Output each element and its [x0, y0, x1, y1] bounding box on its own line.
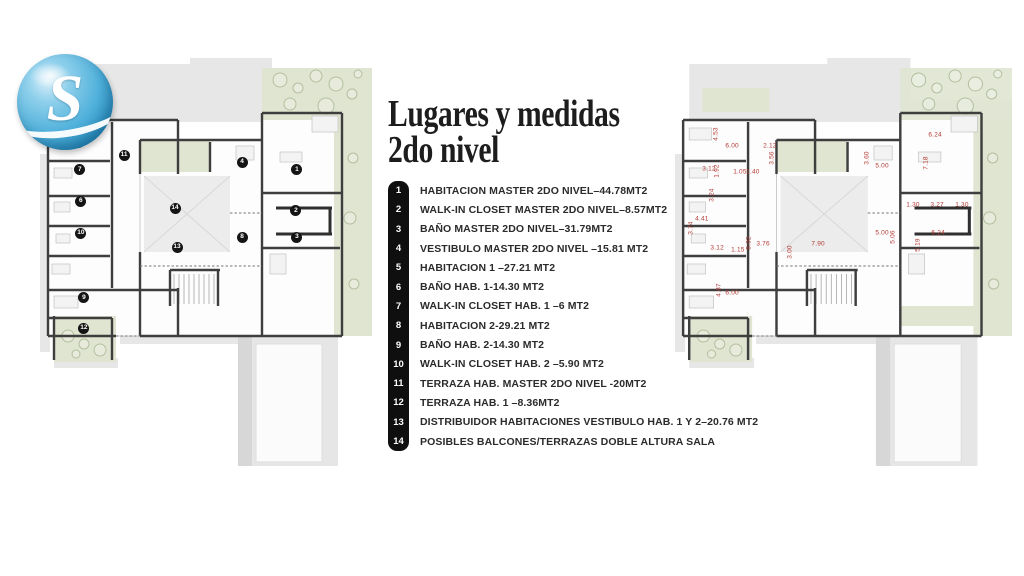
legend-item-number: 13: [388, 413, 409, 432]
legend-item-label: TERRAZA HAB. MASTER 2DO NIVEL -20MT2: [409, 374, 646, 393]
dimension-label: 2.12: [763, 143, 776, 150]
legend-item-number: 8: [388, 316, 409, 335]
logo-letter: S: [47, 66, 84, 132]
dimension-label: 1.30: [906, 202, 919, 209]
dimension-label: 3.12: [710, 244, 723, 251]
legend-item-number: 7: [388, 297, 409, 316]
logo-sphere: S: [17, 54, 113, 150]
room-marker-6: 6: [75, 196, 86, 207]
legend-item-label: HABITACION 2-29.21 MT2: [409, 316, 550, 335]
dimension-label: 5.00: [875, 162, 888, 169]
legend-item-number: 12: [388, 393, 409, 412]
dimension-label: 1.05: [733, 168, 746, 175]
legend-item-number: 5: [388, 258, 409, 277]
legend-item-number: 11: [388, 374, 409, 393]
floor-plan-right: 4.536.002.123.563.121.921.051.403.605.00…: [675, 58, 1015, 468]
dimension-label: 7.18: [922, 156, 929, 169]
dimension-label: 1.15: [731, 246, 744, 253]
legend-item-label: HABITACION 1 –27.21 MT2: [409, 258, 555, 277]
dimension-label: 1.30: [955, 202, 968, 209]
legend-item-label: BAÑO HAB. 2-14.30 MT2: [409, 335, 544, 354]
dimension-label: 1.92: [714, 164, 721, 177]
dimension-label: 6.24: [928, 132, 941, 139]
legend-item-label: WALK-IN CLOSET MASTER 2DO NIVEL–8.57MT2: [409, 200, 667, 219]
dimension-label: 6.24: [931, 230, 944, 237]
legend-item-label: BAÑO HAB. 1-14.30 MT2: [409, 277, 544, 296]
room-marker-10: 10: [75, 228, 86, 239]
legend-item-label: HABITACION MASTER 2DO NIVEL–44.78MT2: [409, 181, 647, 200]
legend-item-label: BAÑO MASTER 2DO NIVEL–31.79MT2: [409, 220, 613, 239]
room-marker-14: 14: [170, 203, 181, 214]
page-title: Lugares y medidas 2do nivel: [388, 96, 620, 168]
legend-item-number: 1: [388, 181, 409, 200]
dimension-label: 5.06: [889, 230, 896, 243]
dimension-label: 6.00: [725, 143, 738, 150]
legend-item-number: 4: [388, 239, 409, 258]
room-marker-4: 4: [237, 157, 248, 168]
legend-item-number: 2: [388, 200, 409, 219]
legend-item-number: 14: [388, 432, 409, 451]
dimension-label: 5.19: [915, 238, 922, 251]
dimension-label: 3.24: [709, 188, 716, 201]
dimension-label: 3.60: [864, 151, 871, 164]
room-marker-8: 8: [237, 232, 248, 243]
dimension-label: 1.40: [746, 168, 759, 175]
page-title-line2: 2do nivel: [388, 129, 499, 171]
dimension-label: 7.90: [811, 241, 824, 248]
legend-item-label: VESTIBULO MASTER 2DO NIVEL –15.81 MT2: [409, 239, 648, 258]
legend-item-number: 6: [388, 277, 409, 296]
legend-item-label: TERRAZA HAB. 1 –8.36MT2: [409, 393, 560, 412]
legend-item-label: WALK-IN CLOSET HAB. 2 –5.90 MT2: [409, 355, 604, 374]
legend-item-number: 9: [388, 335, 409, 354]
floor-plan-drawing: [675, 58, 1015, 468]
legend-item-label: POSIBLES BALCONES/TERRAZAS DOBLE ALTURA …: [409, 432, 715, 451]
dimension-label: 4.41: [695, 216, 708, 223]
slide: 1234567891011121314 S Lugares y medidas …: [0, 0, 1024, 576]
room-marker-13: 13: [172, 242, 183, 253]
driveway-lower-level: [876, 326, 977, 466]
dimension-label: 5.02: [746, 236, 753, 249]
driveway-lower-level: [238, 326, 338, 466]
dimension-label: 3.56: [768, 151, 775, 164]
room-marker-11: 11: [119, 150, 130, 161]
dimension-label: 4.53: [713, 127, 720, 140]
legend-item-number: 3: [388, 220, 409, 239]
legend-item-number: 10: [388, 355, 409, 374]
dimension-label: 3.76: [756, 241, 769, 248]
dimension-label: 6.00: [725, 289, 738, 296]
dimension-label: 3.27: [930, 202, 943, 209]
dimension-label: 3.74: [687, 221, 694, 234]
legend-item-label: WALK-IN CLOSET HAB. 1 –6 MT2: [409, 297, 589, 316]
dimension-label: 5.00: [875, 230, 888, 237]
floor-plan-left: 1234567891011121314 S: [40, 58, 375, 468]
double-height-void: [144, 176, 230, 252]
dimension-label: 4.87: [715, 283, 722, 296]
dimension-label: 3.00: [786, 245, 793, 258]
